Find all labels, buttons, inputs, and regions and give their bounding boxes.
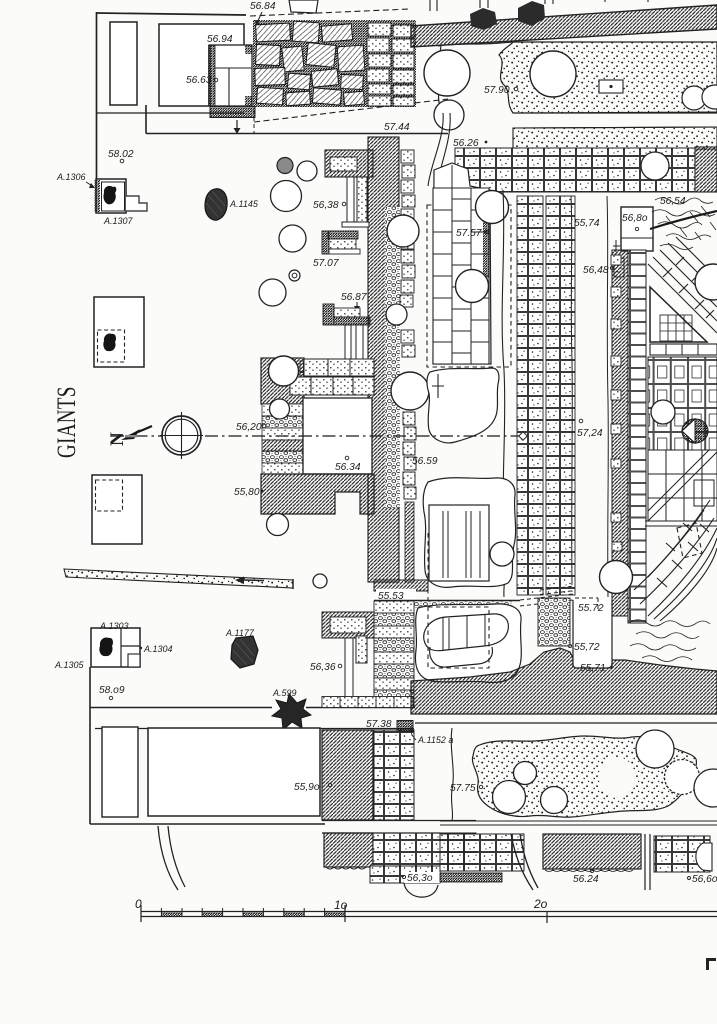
svg-text:56,48: 56,48: [583, 265, 609, 276]
svg-text:55,71: 55,71: [580, 663, 606, 674]
svg-text:A.1306: A.1306: [56, 172, 86, 182]
svg-text:55,9o: 55,9o: [294, 782, 320, 793]
svg-text:1o: 1o: [334, 898, 348, 912]
svg-text:57.57: 57.57: [456, 228, 482, 239]
svg-text:56,20: 56,20: [236, 422, 262, 433]
svg-text:A.1145: A.1145: [229, 199, 259, 209]
svg-text:2o: 2o: [533, 897, 548, 911]
svg-text:57.75: 57.75: [450, 783, 476, 794]
svg-text:56,38: 56,38: [313, 200, 339, 211]
svg-text:55,80: 55,80: [234, 487, 260, 498]
svg-text:57.44: 57.44: [384, 122, 410, 133]
svg-text:56.24: 56.24: [573, 874, 599, 885]
svg-text:A.599: A.599: [272, 688, 297, 698]
svg-text:57.90: 57.90: [484, 85, 510, 96]
svg-text:57.38: 57.38: [366, 719, 392, 730]
svg-text:A.1304: A.1304: [143, 644, 173, 654]
svg-text:A.1305: A.1305: [54, 660, 85, 670]
svg-text:58.02: 58.02: [108, 149, 134, 160]
svg-text:55,74: 55,74: [574, 218, 600, 229]
svg-text:A.1177: A.1177: [225, 628, 255, 638]
svg-text:56.84: 56.84: [250, 1, 276, 12]
svg-text:GIANTS: GIANTS: [52, 386, 81, 458]
svg-text:56,36: 56,36: [310, 662, 336, 673]
svg-text:A.1152 a: A.1152 a: [417, 735, 453, 745]
svg-text:55.72: 55.72: [578, 603, 604, 614]
svg-text:56.94: 56.94: [207, 34, 233, 45]
svg-text:56,6o: 56,6o: [692, 874, 717, 885]
svg-text:56.63: 56.63: [186, 75, 212, 86]
svg-text:A.1303: A.1303: [99, 621, 129, 631]
svg-text:58.o9: 58.o9: [99, 685, 125, 696]
svg-text:56,8o: 56,8o: [622, 213, 648, 224]
svg-text:A.1307: A.1307: [103, 216, 134, 226]
svg-text:56.34: 56.34: [335, 462, 361, 473]
svg-text:57,24: 57,24: [577, 428, 603, 439]
svg-text:55,72: 55,72: [574, 642, 600, 653]
svg-text:56,3o: 56,3o: [407, 873, 433, 884]
svg-text:57.07: 57.07: [313, 258, 339, 269]
svg-text:56.87: 56.87: [341, 292, 367, 303]
svg-text:56.26: 56.26: [453, 138, 479, 149]
svg-text:56.59: 56.59: [412, 456, 438, 467]
